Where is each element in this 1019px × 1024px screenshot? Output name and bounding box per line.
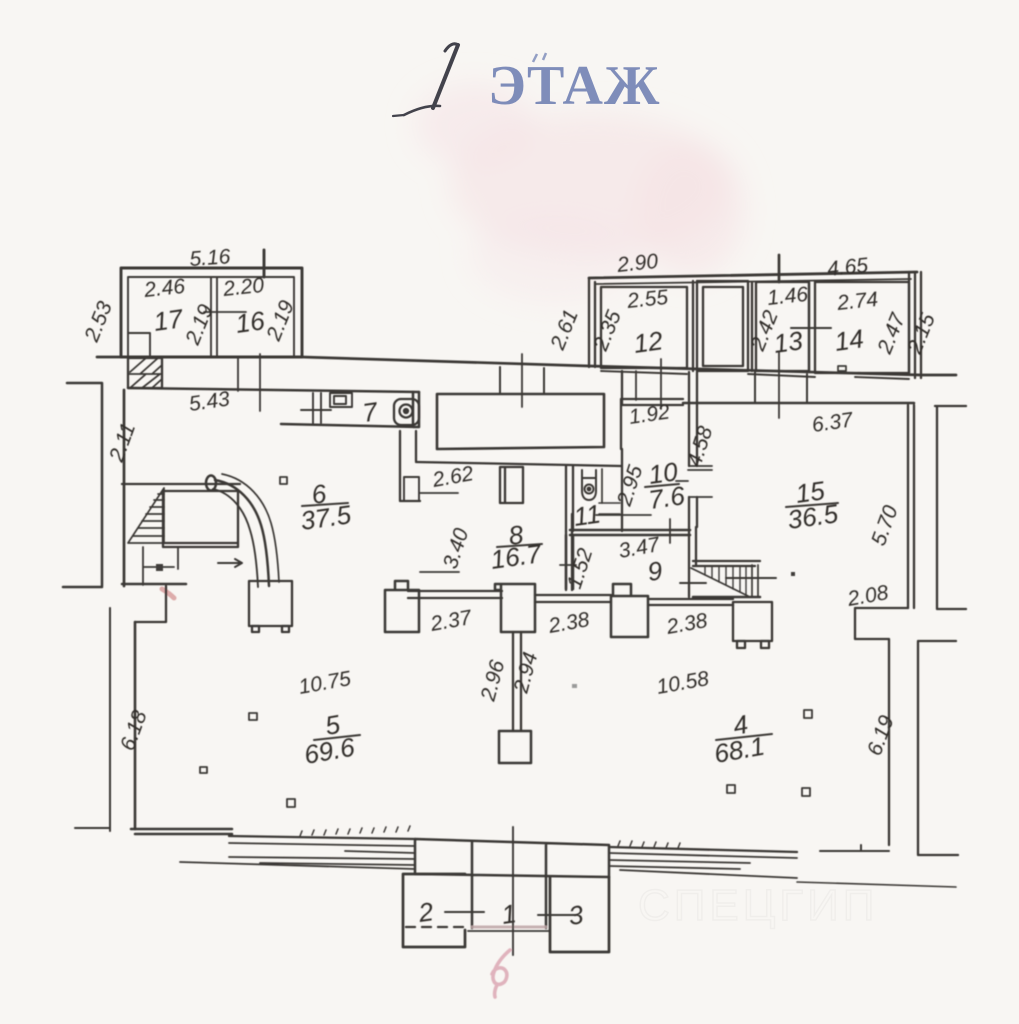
svg-text:2.55: 2.55 [625,286,669,313]
svg-text:1.46: 1.46 [766,283,809,310]
svg-text:7.6: 7.6 [647,480,688,515]
svg-text:17: 17 [152,303,186,337]
svg-text:2.20: 2.20 [221,274,265,301]
svg-text:2.46: 2.46 [142,275,186,302]
svg-text:СПЕЦГИП: СПЕЦГИП [638,881,878,930]
svg-text:5.16: 5.16 [189,245,232,271]
svg-text:14: 14 [833,323,866,357]
svg-text:2.90: 2.90 [615,250,659,277]
svg-text:4.65: 4.65 [826,254,869,281]
svg-text:12: 12 [632,325,665,359]
svg-text:ЭТАЖ: ЭТАЖ [488,55,660,117]
svg-text:2.74: 2.74 [835,288,879,315]
